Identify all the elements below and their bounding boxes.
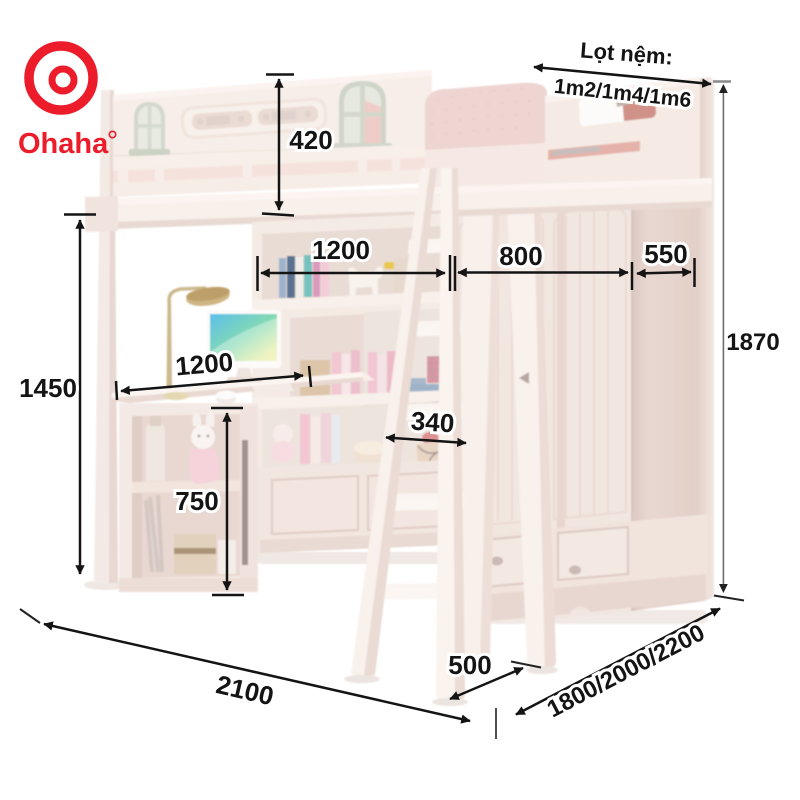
svg-text:1450: 1450 — [19, 373, 77, 403]
svg-text:750: 750 — [175, 486, 218, 516]
svg-text:Ohaha: Ohaha — [18, 128, 109, 160]
svg-text:500: 500 — [448, 650, 491, 680]
svg-text:Lọt nệm:: Lọt nệm: — [579, 37, 674, 69]
svg-text:1200: 1200 — [312, 235, 370, 265]
svg-text:340: 340 — [410, 406, 455, 439]
svg-text:1200: 1200 — [174, 347, 234, 382]
svg-text:1870: 1870 — [726, 329, 779, 356]
svg-text:1800/2000/2200: 1800/2000/2200 — [543, 619, 709, 723]
svg-text:550: 550 — [644, 239, 687, 269]
svg-text:800: 800 — [499, 241, 542, 271]
svg-text:420: 420 — [289, 125, 332, 155]
